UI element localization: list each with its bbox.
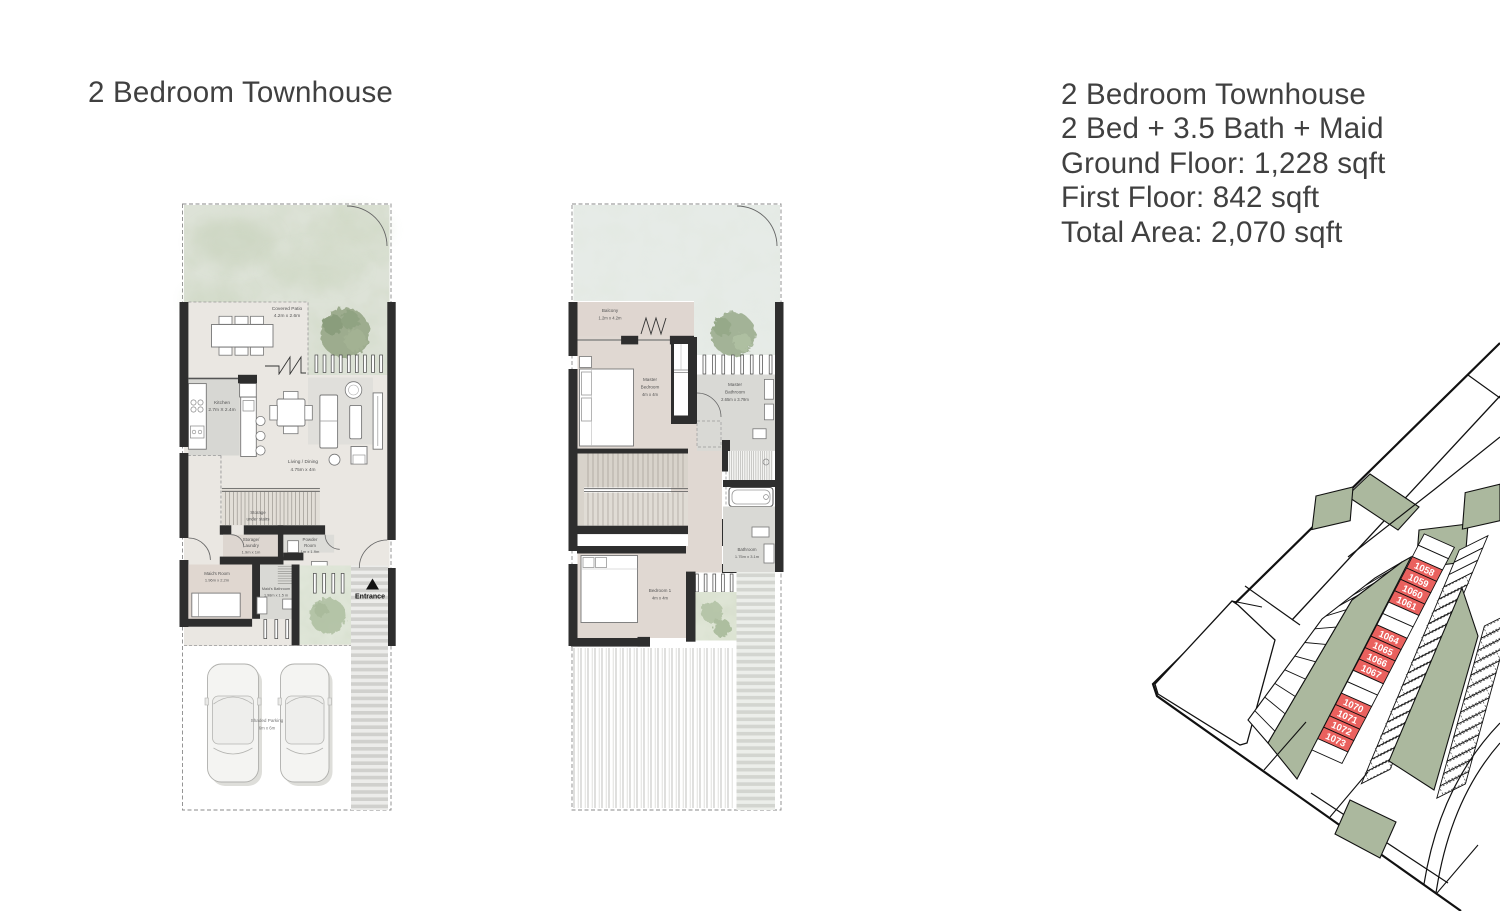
svg-text:Bathroom: Bathroom xyxy=(737,547,756,552)
svg-text:Shaded Parking: Shaded Parking xyxy=(251,718,284,723)
svg-text:Maid's Room: Maid's Room xyxy=(204,571,230,576)
svg-text:Laundry: Laundry xyxy=(243,543,260,548)
svg-text:1.98m x 1.5 m: 1.98m x 1.5 m xyxy=(264,594,288,598)
svg-text:Powder: Powder xyxy=(303,537,318,542)
svg-text:Living / Dining: Living / Dining xyxy=(288,459,318,465)
svg-text:6m x 6m: 6m x 6m xyxy=(259,726,276,731)
svg-text:Master: Master xyxy=(643,377,658,382)
svg-text:Storage/: Storage/ xyxy=(243,537,260,542)
svg-text:Storage: Storage xyxy=(250,510,266,515)
svg-text:Covered Patio: Covered Patio xyxy=(272,306,303,312)
svg-text:Entrance: Entrance xyxy=(355,594,385,601)
svg-text:4m x 4m: 4m x 4m xyxy=(642,392,659,397)
svg-text:4.2m x 2.6m: 4.2m x 2.6m xyxy=(274,313,300,319)
svg-text:Kitchen: Kitchen xyxy=(214,400,230,406)
svg-text:4.75m x 4m: 4.75m x 4m xyxy=(290,467,315,473)
svg-text:Master: Master xyxy=(728,382,743,387)
svg-text:Room: Room xyxy=(304,543,316,548)
svg-text:Bedroom: Bedroom xyxy=(641,385,660,390)
svg-text:under stairs: under stairs xyxy=(247,517,271,522)
svg-text:2.65m x 3.79m: 2.65m x 3.79m xyxy=(721,397,749,402)
svg-text:2.7m X 2.4m: 2.7m X 2.4m xyxy=(208,407,235,413)
svg-text:Bathroom: Bathroom xyxy=(725,390,745,395)
svg-text:1m x 1.9m: 1m x 1.9m xyxy=(301,549,320,554)
svg-text:Bedroom 1: Bedroom 1 xyxy=(649,588,672,593)
svg-text:1.96m x 2.2m: 1.96m x 2.2m xyxy=(205,578,230,583)
svg-text:4m x 4m: 4m x 4m xyxy=(652,596,669,601)
svg-text:1.75m x 3.1m: 1.75m x 3.1m xyxy=(735,554,760,559)
svg-text:1.9m x 1m: 1.9m x 1m xyxy=(242,550,261,555)
svg-text:1.2m x 4.2m: 1.2m x 4.2m xyxy=(598,316,622,321)
svg-text:Balcony: Balcony xyxy=(602,308,619,313)
svg-text:Maid's Bathroom: Maid's Bathroom xyxy=(262,587,290,591)
